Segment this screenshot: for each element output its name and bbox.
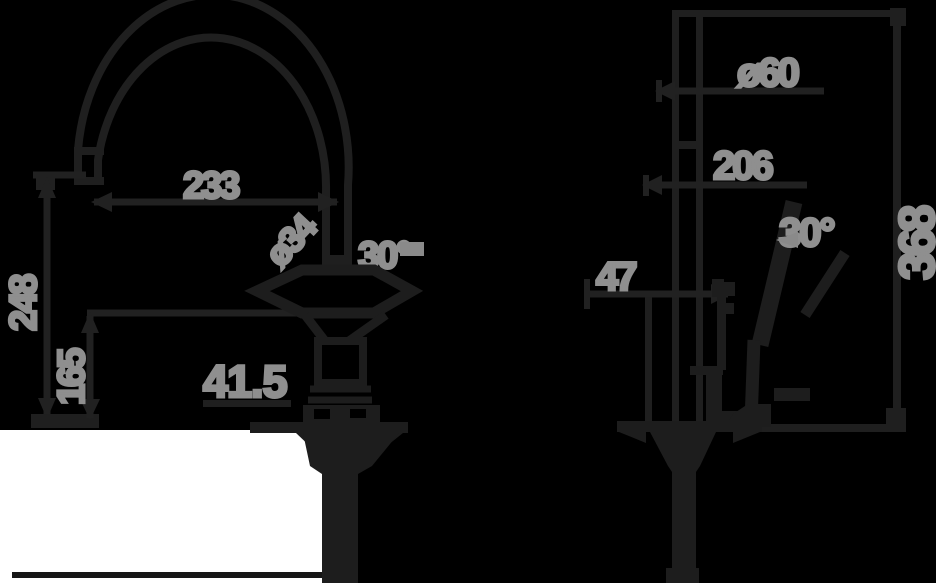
svg-text:41.5: 41.5	[203, 356, 287, 407]
svg-text:368: 368	[889, 205, 936, 280]
svg-text:47: 47	[596, 255, 636, 299]
svg-text:248: 248	[3, 275, 45, 331]
svg-text:165: 165	[51, 348, 93, 405]
svg-text:30°: 30°	[779, 211, 834, 255]
svg-text:206: 206	[713, 144, 772, 188]
svg-text:233: 233	[183, 165, 239, 207]
svg-text:ø60: ø60	[737, 51, 799, 95]
